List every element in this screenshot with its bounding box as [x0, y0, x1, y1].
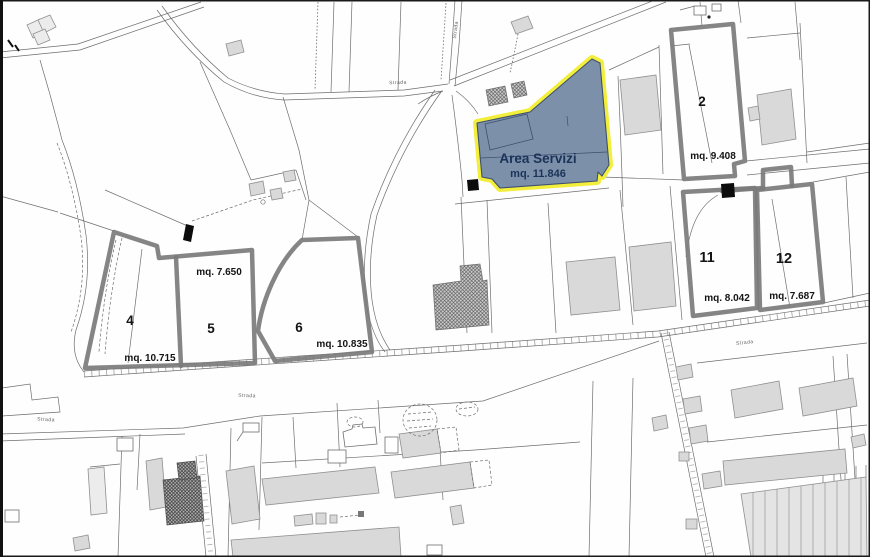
building	[748, 106, 760, 121]
parcel-4-area: mq. 10.715	[124, 353, 176, 364]
building	[620, 75, 661, 135]
building	[679, 452, 689, 461]
road-label: Strada	[37, 417, 55, 424]
building	[330, 515, 337, 523]
parcel-5-area: mq. 7.650	[196, 267, 242, 278]
parcel-12-number: 12	[776, 251, 792, 267]
building	[294, 514, 313, 526]
building	[689, 425, 708, 444]
building	[358, 511, 364, 517]
black-marker	[721, 183, 735, 198]
building	[328, 450, 346, 463]
area-servizi-label: Area Servizi	[499, 151, 576, 166]
hatched-building	[486, 86, 508, 106]
parcel-5-number: 5	[207, 321, 215, 336]
building	[694, 6, 706, 15]
building	[702, 471, 722, 489]
building	[243, 423, 259, 432]
cadastral-map: Area Servizi mq. 11.846 2 mq. 9.408 4 mq…	[0, 0, 870, 557]
road-label: Strada	[238, 393, 256, 400]
marker-dot	[707, 15, 710, 18]
area-servizi-area: mq. 11.846	[510, 168, 566, 180]
building	[270, 188, 283, 200]
hatched-building	[511, 81, 527, 98]
building	[686, 519, 697, 529]
parcel-6-area: mq. 10.835	[316, 339, 368, 350]
building	[683, 396, 702, 414]
building	[73, 535, 90, 551]
building	[226, 466, 260, 524]
building	[88, 467, 107, 515]
building	[427, 545, 442, 555]
building	[283, 170, 296, 182]
black-marker	[467, 179, 479, 191]
parcel-11-number: 11	[699, 250, 714, 266]
building	[851, 434, 866, 448]
parcel-6-number: 6	[295, 320, 303, 335]
building	[450, 505, 464, 525]
building	[652, 415, 668, 431]
parcel-4-number: 4	[126, 313, 134, 328]
building	[146, 458, 166, 510]
parcel-11-area: mq. 8.042	[704, 293, 750, 304]
building	[117, 438, 133, 451]
building	[5, 510, 19, 522]
building	[316, 513, 326, 524]
building	[566, 257, 620, 315]
road-label: Strada	[389, 80, 407, 87]
hatched-building	[177, 461, 197, 480]
building	[249, 181, 265, 196]
building	[399, 429, 441, 458]
building	[385, 437, 398, 453]
building	[676, 364, 693, 380]
building	[757, 89, 796, 145]
map-canvas: Area Servizi mq. 11.846 2 mq. 9.408 4 mq…	[0, 0, 870, 557]
parcel-2-number: 2	[698, 94, 706, 109]
parcel-12-area: mq. 7.687	[769, 291, 815, 302]
building	[712, 4, 721, 11]
hatched-building	[163, 476, 204, 525]
building	[629, 242, 676, 311]
parcel-2-area: mq. 9.408	[690, 151, 736, 162]
